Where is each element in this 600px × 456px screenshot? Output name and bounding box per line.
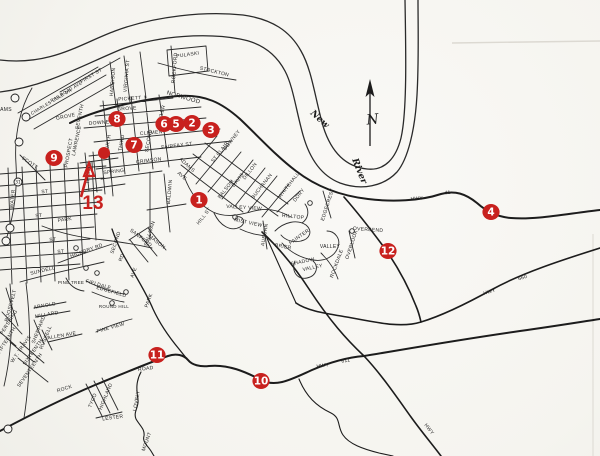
- street-label: HARRISON: [109, 67, 117, 96]
- street-label: PULASKI: [176, 50, 200, 59]
- marker-number: 12: [381, 246, 396, 258]
- street-label: DORY: [292, 187, 307, 203]
- marker-3: 3: [202, 122, 219, 138]
- street-label: SECOND: [110, 231, 123, 255]
- street-label: ST: [41, 189, 49, 196]
- marker-number: 1: [195, 195, 202, 207]
- street-label: MILLARD: [35, 310, 60, 320]
- circled-symbol: [4, 425, 12, 433]
- street-label: 660: [517, 274, 528, 282]
- marker-number: 8: [113, 114, 120, 126]
- circled-symbol-ring: [15, 138, 23, 146]
- street-label: BALDWIN: [166, 179, 174, 204]
- street-label: BALSOM: [217, 179, 236, 201]
- circled-symbol-number: 31: [15, 180, 21, 186]
- marker-13-label: 13: [82, 193, 103, 214]
- street-label: ROCKDALE: [329, 248, 345, 278]
- street-label: ST CLAIR: [210, 141, 230, 164]
- street-label: RD: [118, 253, 126, 262]
- street-label: OVERLOOK: [344, 229, 359, 260]
- marker-number: 4: [487, 207, 494, 219]
- circled-symbol: [15, 138, 23, 146]
- marker-number: 5: [172, 119, 179, 131]
- street-label: ROCK: [56, 384, 73, 395]
- street-label: LESTER: [102, 414, 124, 423]
- street-label: EDGEFIELD: [96, 285, 128, 299]
- street-label: WATER: [9, 189, 17, 209]
- marker-number: 7: [130, 140, 137, 152]
- diagonal-highway-southeast: [262, 232, 441, 456]
- circled-symbol: [11, 94, 19, 102]
- marker-13-dot: [98, 147, 110, 159]
- street-label: VIRGINIA ST: [123, 59, 132, 92]
- street-label: HWY: [483, 287, 497, 297]
- marker-4: 4: [482, 204, 499, 220]
- street-label: PINE VIEW: [96, 321, 125, 335]
- marker-1: 1: [190, 192, 207, 208]
- street-label: EDGECREST: [320, 188, 336, 222]
- street-label: BUCHANAN: [250, 172, 274, 200]
- scan-artifacts: [452, 41, 600, 456]
- bottom-stream-road: [299, 379, 393, 456]
- street-label: ARNOLD: [33, 301, 56, 311]
- street-label: MOUNT: [141, 431, 153, 452]
- marker-6: 6: [155, 116, 172, 132]
- marker-8: 8: [108, 111, 125, 127]
- north-arrow: N: [365, 79, 381, 146]
- marker-number: 3: [207, 125, 214, 137]
- marker-11: 11: [148, 347, 165, 363]
- circled-symbol: [6, 224, 14, 232]
- street-label: LOVELY: [132, 390, 142, 412]
- marker-10: 10: [252, 373, 269, 389]
- circled-symbol: [22, 113, 30, 121]
- marker-12: 12: [379, 243, 396, 259]
- street-label: SCOTT: [20, 155, 39, 170]
- river-word-new: New: [307, 108, 331, 131]
- marker-number: 2: [188, 118, 195, 130]
- street-label: ST: [35, 213, 43, 220]
- circled-symbol: [2, 237, 10, 245]
- street-label: VALLEY VIEW: [226, 204, 262, 212]
- street-label: HILLTOP: [282, 213, 305, 221]
- road-through-marker12: [344, 197, 421, 322]
- street-label: CRIMSON: [136, 156, 162, 165]
- marker-number: 9: [50, 153, 57, 165]
- street-label: VALLEY: [320, 244, 341, 250]
- street-label: AMS: [0, 107, 12, 113]
- river-word-river: River: [349, 156, 369, 186]
- southwest-streets: [0, 244, 132, 418]
- street-label: 11: [445, 190, 451, 196]
- street-label: HILL ST: [196, 207, 213, 227]
- river-name: New River: [307, 108, 369, 187]
- circled-symbol-ring: [2, 237, 10, 245]
- marker-9: 9: [45, 150, 62, 166]
- street-label: HICKORY RD: [70, 242, 104, 259]
- street-label: PARK: [57, 216, 73, 224]
- marker-number: 6: [160, 119, 167, 131]
- marker-7: 7: [125, 137, 142, 153]
- marker-number: 11: [150, 350, 165, 362]
- street-label: MIST VIEW: [234, 217, 263, 229]
- circled-symbol-ring: [22, 113, 30, 121]
- circled-symbol-ring: [6, 224, 14, 232]
- circled-symbol-ring: [4, 425, 12, 433]
- street-label: 611: [341, 357, 351, 364]
- street-label: ROUND HILL: [99, 304, 129, 309]
- street-label: THIRD: [118, 134, 127, 152]
- street-label: ST: [49, 237, 57, 244]
- marker-number: 10: [254, 376, 269, 388]
- circled-symbol: 31: [14, 178, 22, 186]
- marker-2: 2: [183, 115, 200, 131]
- scanned-street-map: 31 PULASKISTOCKTONROCKFORDNORWOODVIRGINI…: [0, 0, 600, 456]
- circled-symbol-ring: [11, 94, 19, 102]
- street-label: HWY: [316, 362, 330, 370]
- street-label: FIRST ST: [79, 67, 103, 85]
- north-label: N: [365, 111, 381, 128]
- street-label: ST: [57, 249, 65, 256]
- street-label: PARK: [144, 293, 155, 309]
- street-label: PINE TREE: [58, 280, 84, 285]
- street-label: PAINTER: [288, 228, 311, 246]
- street-label: ROAD: [138, 365, 154, 373]
- rock-road-hwy611: [0, 319, 600, 431]
- street-label: SPRING: [103, 168, 125, 177]
- street-label: HWY: [410, 195, 423, 202]
